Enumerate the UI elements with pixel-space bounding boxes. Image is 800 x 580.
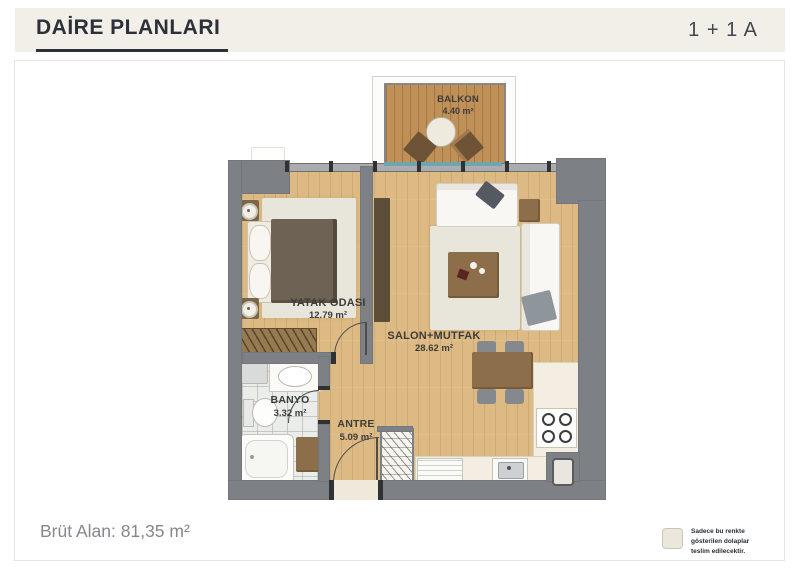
room-name-banyo: BANYO <box>250 394 330 408</box>
door-jamb <box>318 386 330 390</box>
coffee-table <box>448 252 499 298</box>
bed-pillow <box>249 225 271 261</box>
lamp-icon <box>241 301 258 318</box>
table-decor <box>479 268 485 274</box>
page-title: DAİRE PLANLARI <box>36 16 220 40</box>
room-label-antre: ANTRE 5.09 m² <box>316 418 396 444</box>
room-label-balkon: BALKON 4.40 m² <box>414 94 502 118</box>
door-jamb <box>329 480 334 500</box>
dining-chair <box>505 389 524 404</box>
door-jamb <box>331 352 336 364</box>
burner-icon <box>559 430 572 443</box>
delivery-note: Sadece bu renkte gösterilen dolaplar tes… <box>691 527 771 557</box>
delivery-note-line: gösterilen dolaplar <box>691 537 771 547</box>
sink-basin <box>498 462 524 479</box>
stove <box>536 408 577 448</box>
burner-icon <box>559 413 572 426</box>
window-mullion <box>417 161 421 172</box>
room-area-antre: 5.09 m² <box>316 432 396 444</box>
window-mullion <box>461 161 465 172</box>
burner-icon <box>542 430 555 443</box>
room-area-balkon: 4.40 m² <box>414 106 502 118</box>
window-mullion <box>329 161 333 172</box>
lamp-icon <box>241 203 258 220</box>
cabinet-color-swatch <box>662 528 683 549</box>
room-name-yatak-odasi: YATAK ODASI <box>268 296 388 310</box>
bed-duvet <box>271 219 337 303</box>
floor-plan: BALKON 4.40 m² <box>228 76 608 502</box>
plan-type-label: 1 + 1 A <box>610 19 758 42</box>
daire-planlari-page: DAİRE PLANLARI 1 + 1 A BALKON 4.40 m² <box>0 0 800 580</box>
room-label-yatak-odasi: YATAK ODASI 12.79 m² <box>268 296 388 323</box>
room-label-salon-mutfak: SALON+MUTFAK 28.62 m² <box>374 329 494 356</box>
window-mullion <box>373 161 377 172</box>
wall-bathroom-upper <box>318 356 330 390</box>
delivery-note-line: teslim edilecektir. <box>691 547 771 557</box>
room-area-salon-mutfak: 28.62 m² <box>374 343 494 355</box>
shaft <box>552 458 574 486</box>
room-area-yatak-odasi: 12.79 m² <box>268 310 388 322</box>
dining-chair <box>477 389 496 404</box>
bathtub-inner <box>245 440 288 478</box>
gross-area-label: Brüt Alan: 81,35 m² <box>40 521 190 542</box>
drain-icon <box>250 455 254 459</box>
entrance-threshold <box>333 480 379 500</box>
kitchen-appliance <box>417 458 463 482</box>
balcony-glass-rail <box>384 162 502 166</box>
room-name-antre: ANTRE <box>316 418 396 432</box>
room-label-banyo: BANYO 3.32 m² <box>250 394 330 420</box>
sink-basin <box>278 366 312 387</box>
burner-icon <box>542 413 555 426</box>
wall-left <box>228 160 242 500</box>
side-table <box>519 199 540 222</box>
bathtub <box>239 434 294 484</box>
title-underline <box>36 49 228 52</box>
door-jamb <box>378 480 383 500</box>
table-decor <box>470 262 477 269</box>
window-mullion <box>285 161 289 172</box>
table-decor <box>457 269 469 281</box>
bedroom-door-leaf <box>365 322 367 355</box>
delivery-note-line: Sadece bu renkte <box>691 527 771 537</box>
kitchen-sink <box>492 458 528 482</box>
window-mullion <box>547 161 551 172</box>
wall-corner-top-right <box>556 158 606 204</box>
faucet-icon <box>507 466 511 470</box>
dining-table <box>472 352 533 389</box>
room-name-balkon: BALKON <box>414 94 502 106</box>
room-name-salon-mutfak: SALON+MUTFAK <box>374 329 494 343</box>
bed-pillow <box>249 263 271 299</box>
sofa-top <box>436 183 518 227</box>
bedroom-wardrobe <box>240 328 317 354</box>
window-mullion <box>505 161 509 172</box>
wall-bottom <box>228 480 606 500</box>
wall-right <box>578 200 606 500</box>
